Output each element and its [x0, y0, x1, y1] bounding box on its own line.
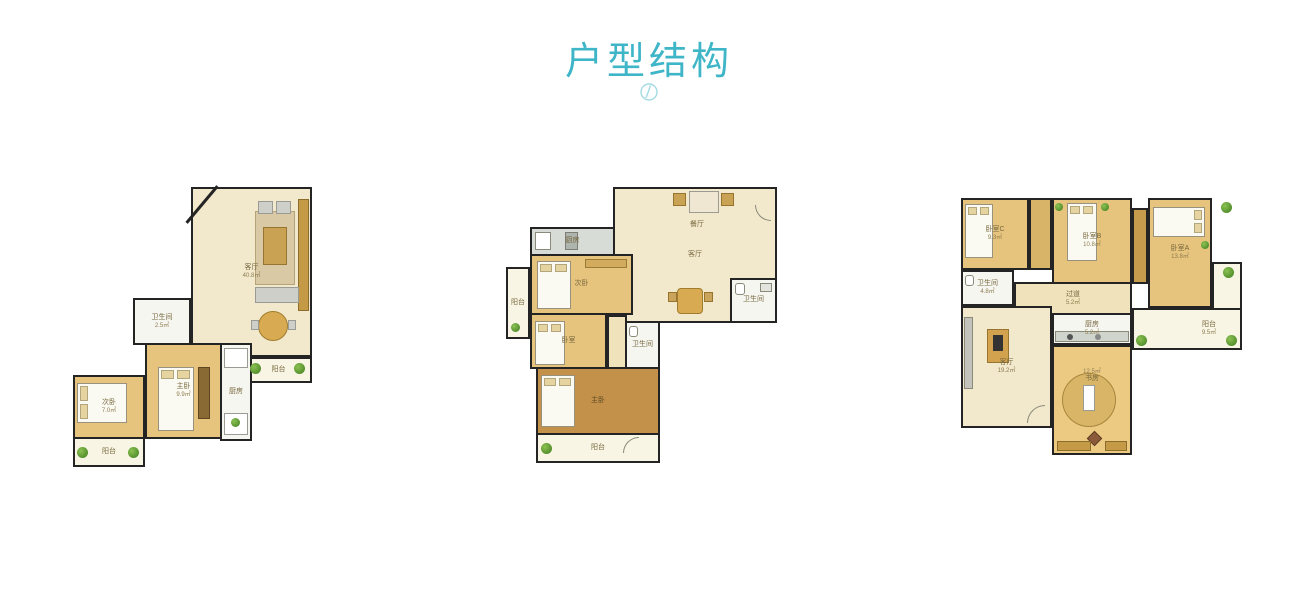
- room-label: 阳台: [591, 444, 605, 453]
- plant-icon: [128, 447, 139, 458]
- sofa: [258, 201, 273, 214]
- room-label: 主卧: [591, 397, 605, 406]
- pillow: [80, 386, 88, 401]
- room-label: 次卧: [575, 280, 589, 289]
- pillow: [1083, 206, 1093, 214]
- room-label: 卧室C: [985, 226, 1004, 235]
- pillow: [161, 370, 174, 379]
- room-area: 7.0㎡: [102, 408, 116, 415]
- pillow: [1194, 210, 1202, 220]
- hallway: [607, 315, 627, 369]
- plant-icon: [231, 418, 240, 427]
- desk: [1105, 441, 1127, 451]
- room-area: 9.5㎡: [1202, 330, 1216, 337]
- pillow: [551, 324, 561, 332]
- toilet: [735, 283, 745, 295]
- room-area: 13.8㎡: [1171, 254, 1189, 261]
- room-label: 卫生间: [977, 280, 998, 289]
- closet: [1029, 198, 1052, 270]
- room-label: 阳台: [102, 448, 116, 457]
- pillow: [544, 378, 556, 386]
- sink: [760, 283, 772, 292]
- chair: [673, 193, 686, 206]
- tv: [993, 335, 1003, 351]
- sofa: [255, 287, 299, 303]
- room-area: 40.8㎡: [243, 273, 261, 280]
- kitchen-counter: [224, 348, 248, 368]
- plant-icon: [1226, 335, 1237, 346]
- tv-cabinet: [298, 199, 309, 311]
- room-area: 2.5㎡: [155, 323, 169, 330]
- plant-icon: [511, 323, 520, 332]
- dining-table: [677, 288, 703, 314]
- room-label: 卫生间: [743, 296, 764, 305]
- stove: [1067, 334, 1073, 340]
- room-area: 10.8㎡: [1083, 242, 1101, 249]
- dining-table: [689, 191, 719, 213]
- room-label: 次卧: [102, 399, 116, 408]
- coffee-table: [263, 227, 287, 265]
- pillow: [980, 207, 989, 215]
- room-area: 12.5㎡: [1054, 369, 1130, 376]
- chair: [668, 292, 677, 302]
- room-area: 5.2㎡: [1085, 330, 1099, 337]
- plant-icon: [294, 363, 305, 374]
- room-area: 19.2㎡: [998, 368, 1016, 375]
- room-label: 卫生间: [152, 314, 173, 323]
- floorplan-1[interactable]: 客厅 40.8㎡ 阳台 卫生间 2.5㎡ 主卧 9.9㎡ 次卧: [62, 185, 314, 467]
- floorplan-2[interactable]: 客厅 餐厅 厨房 次卧 阳台 卧室 卫生: [505, 185, 780, 467]
- kitchen-counter: [535, 232, 551, 250]
- plant-icon: [1221, 202, 1232, 213]
- toilet: [629, 326, 638, 337]
- pillow: [538, 324, 548, 332]
- chair: [704, 292, 713, 302]
- room-label: 客厅: [1000, 359, 1014, 368]
- room-label: 卧室A: [1171, 245, 1190, 254]
- plant-icon: [77, 447, 88, 458]
- room-label: 阳台: [272, 366, 286, 375]
- dining-table: [258, 311, 288, 341]
- pillow: [1194, 223, 1202, 233]
- sofa: [276, 201, 291, 214]
- plant-icon: [541, 443, 552, 454]
- floorplan-3[interactable]: 卧室C 9.3㎡ 卧室B 10.8㎡ 卧室A 13.8㎡ 卫生间 4.8㎡: [955, 195, 1242, 455]
- room-label: 主卧: [177, 383, 191, 392]
- room-label: 餐厅: [677, 221, 717, 230]
- pillow: [177, 370, 190, 379]
- room-bathroom: 卫生间 2.5㎡: [133, 298, 191, 345]
- room-label: 客厅: [245, 264, 259, 273]
- room-label: 阳台: [1202, 321, 1216, 330]
- room-area: 4.8㎡: [980, 289, 994, 296]
- pillow: [1070, 206, 1080, 214]
- room-balcony: 阳台 9.5㎡: [1132, 308, 1242, 350]
- desk: [1057, 441, 1091, 451]
- wardrobe: [1132, 208, 1148, 284]
- pillow: [559, 378, 571, 386]
- room-label: 过道: [1066, 291, 1080, 300]
- chair: [251, 320, 259, 330]
- plant-icon: [250, 363, 261, 374]
- pillow: [968, 207, 977, 215]
- page-title: 户型结构: [0, 30, 1298, 85]
- room-label: 厨房: [229, 388, 243, 397]
- pillow: [540, 264, 552, 272]
- clock-icon: [0, 82, 1298, 107]
- room-label: 卧室B: [1083, 233, 1102, 242]
- tv-cabinet: [964, 317, 973, 389]
- plant-icon: [1223, 267, 1234, 278]
- room-area: 9.3㎡: [988, 235, 1002, 242]
- room-label: 书房: [1085, 375, 1099, 384]
- toilet: [965, 275, 974, 286]
- room-label: 厨房: [1085, 321, 1099, 330]
- pillow: [1083, 385, 1095, 411]
- plant-icon: [1101, 203, 1109, 211]
- page: 户型结构 客厅 40.8㎡ 阳台 卫生间 2.5㎡ 主卧: [0, 0, 1298, 606]
- room-area: 9.9㎡: [176, 392, 190, 399]
- chair: [721, 193, 734, 206]
- chair: [288, 320, 296, 330]
- room-area: 5.2㎡: [1066, 300, 1080, 307]
- room-label: 阳台: [511, 299, 525, 308]
- wardrobe: [198, 367, 210, 419]
- wardrobe: [585, 259, 627, 268]
- plant-icon: [1136, 335, 1147, 346]
- plant-icon: [1201, 241, 1209, 249]
- pillow: [80, 404, 88, 419]
- room-label: 客厅: [688, 251, 702, 260]
- room-label: 厨房: [566, 237, 580, 246]
- plant-icon: [1055, 203, 1063, 211]
- room-label: 卧室: [562, 337, 576, 346]
- room-balcony: 阳台: [536, 433, 660, 463]
- pillow: [555, 264, 567, 272]
- room-label: 卫生间: [632, 341, 653, 350]
